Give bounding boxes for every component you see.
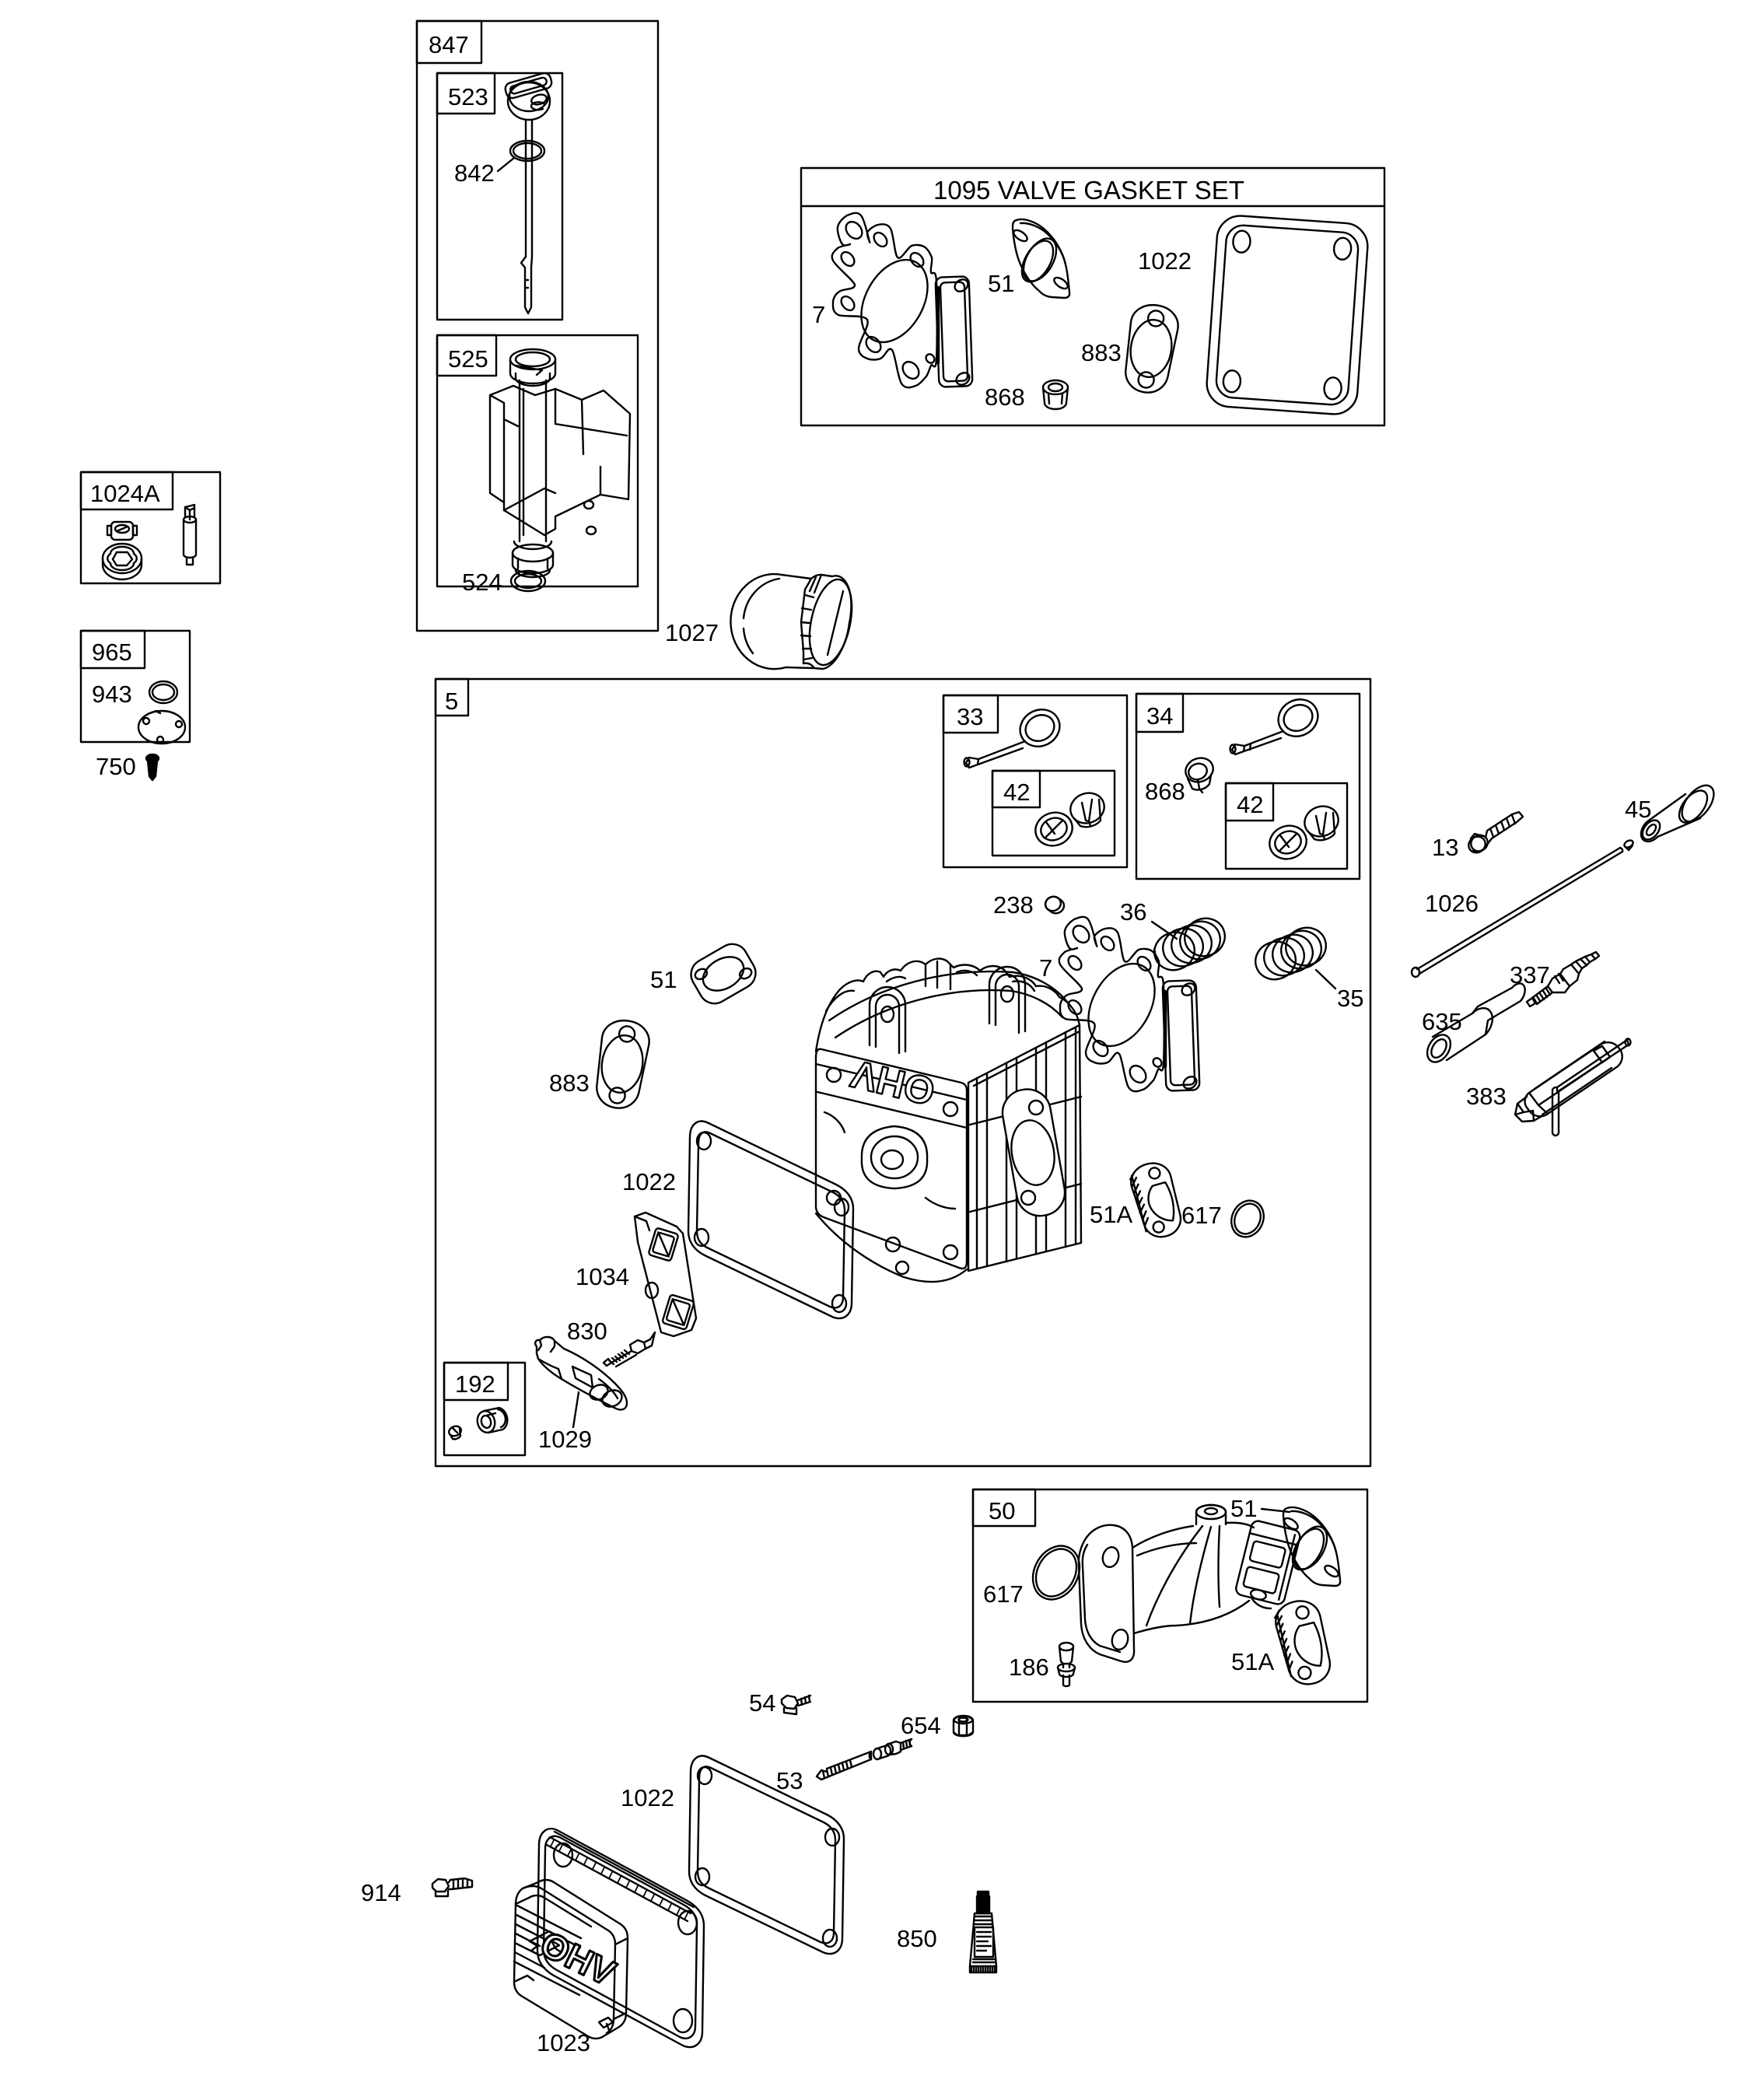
- svg-text:5: 5: [445, 688, 458, 715]
- svg-text:35: 35: [1337, 985, 1363, 1012]
- svg-text:847: 847: [429, 31, 469, 58]
- svg-text:830: 830: [567, 1318, 607, 1345]
- svg-text:45: 45: [1625, 796, 1651, 823]
- svg-text:51: 51: [988, 270, 1014, 297]
- svg-text:13: 13: [1432, 834, 1458, 861]
- svg-text:53: 53: [776, 1767, 803, 1794]
- svg-text:34: 34: [1146, 702, 1173, 730]
- svg-text:850: 850: [897, 1925, 937, 1952]
- svg-text:617: 617: [1181, 1202, 1222, 1229]
- svg-text:42: 42: [1003, 779, 1030, 806]
- svg-text:7: 7: [812, 301, 825, 328]
- svg-text:868: 868: [1145, 778, 1185, 805]
- svg-text:238: 238: [993, 891, 1034, 919]
- svg-text:654: 654: [901, 1712, 941, 1739]
- svg-text:1022: 1022: [1138, 247, 1192, 275]
- svg-text:51: 51: [650, 966, 677, 993]
- svg-text:883: 883: [549, 1069, 590, 1097]
- svg-text:1026: 1026: [1425, 890, 1479, 917]
- svg-text:883: 883: [1081, 339, 1122, 366]
- svg-text:383: 383: [1466, 1083, 1507, 1110]
- svg-text:523: 523: [448, 83, 488, 110]
- svg-text:54: 54: [749, 1689, 775, 1717]
- svg-text:525: 525: [448, 345, 488, 373]
- svg-text:1095 VALVE GASKET SET: 1095 VALVE GASKET SET: [933, 176, 1244, 205]
- svg-text:51A: 51A: [1231, 1648, 1274, 1675]
- svg-text:36: 36: [1120, 898, 1146, 926]
- svg-text:192: 192: [455, 1370, 495, 1398]
- svg-text:1022: 1022: [622, 1168, 676, 1195]
- svg-text:1027: 1027: [665, 619, 719, 646]
- svg-text:33: 33: [957, 703, 983, 730]
- svg-text:868: 868: [985, 383, 1025, 411]
- svg-text:1023: 1023: [537, 2029, 590, 2056]
- svg-text:1024A: 1024A: [90, 480, 160, 507]
- svg-text:965: 965: [92, 639, 132, 666]
- svg-text:524: 524: [462, 569, 502, 596]
- svg-text:750: 750: [96, 753, 136, 780]
- svg-text:617: 617: [983, 1580, 1024, 1608]
- svg-text:7: 7: [1039, 954, 1052, 982]
- svg-text:842: 842: [454, 159, 495, 187]
- svg-text:50: 50: [989, 1497, 1015, 1524]
- svg-text:914: 914: [361, 1879, 401, 1906]
- svg-text:943: 943: [92, 681, 132, 708]
- svg-text:186: 186: [1009, 1654, 1049, 1681]
- svg-text:51: 51: [1230, 1495, 1257, 1522]
- svg-text:1022: 1022: [621, 1784, 674, 1811]
- svg-text:1034: 1034: [576, 1263, 629, 1290]
- svg-text:51A: 51A: [1090, 1201, 1132, 1228]
- svg-text:1029: 1029: [538, 1426, 592, 1453]
- svg-text:42: 42: [1237, 791, 1263, 818]
